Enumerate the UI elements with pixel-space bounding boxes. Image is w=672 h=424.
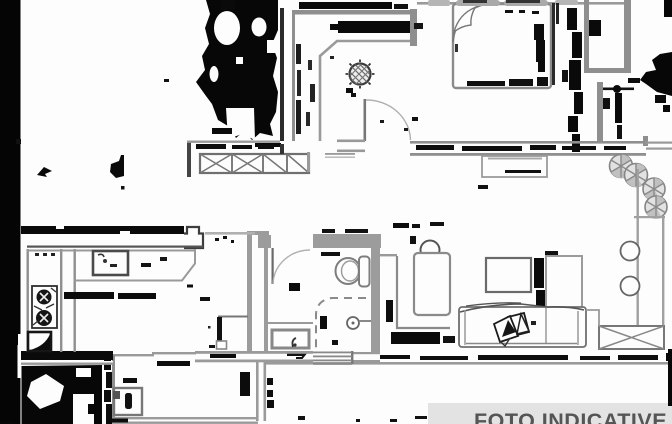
svg-text:FOTO INDICATIVE: FOTO INDICATIVE [474,409,667,424]
